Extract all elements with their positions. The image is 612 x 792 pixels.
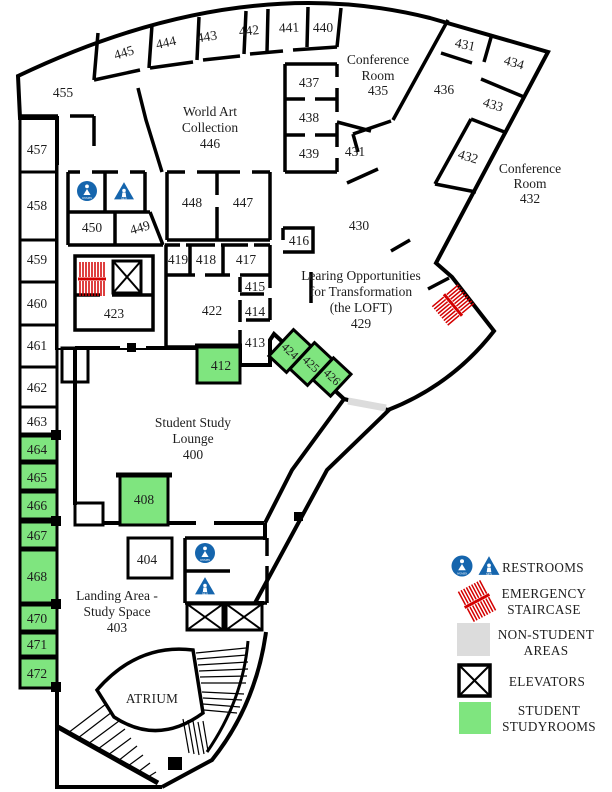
area-label-loft-1: Learing Opportunities: [301, 268, 421, 283]
room-label-471: 471: [27, 637, 47, 652]
legend-label-emergency-1: EMERGENCY: [502, 586, 587, 601]
room-label-419: 419: [168, 252, 189, 267]
legend-label-emergency-2: STAIRCASE: [507, 602, 580, 617]
room-label-467: 467: [27, 528, 48, 543]
room-label-470: 470: [27, 611, 48, 626]
room-label-441: 441: [278, 19, 299, 35]
room-label-461: 461: [27, 338, 47, 353]
room-label-436: 436: [434, 82, 455, 97]
area-label-landing-3: 403: [107, 620, 128, 635]
area-label-446-3: 446: [200, 136, 221, 151]
legend-emergency-staircase-icon: [457, 579, 498, 622]
area-label-conf435-3: 435: [368, 83, 389, 98]
legend-label-non-student-1: NON-STUDENT: [498, 627, 594, 642]
room-label-464: 464: [27, 442, 48, 457]
room-label-440: 440: [313, 20, 334, 35]
room-label-450: 450: [82, 220, 103, 235]
floor-plan-map: WOMEN MEN WOMEN MEN 455 445 444 443 442 …: [0, 0, 612, 792]
room-label-448: 448: [182, 195, 203, 210]
emergency-staircase-icon: [431, 283, 475, 326]
room-label-422: 422: [202, 303, 222, 318]
room-label-418: 418: [196, 252, 217, 267]
area-label-conf435-2: Room: [361, 68, 395, 83]
area-label-conf432-1: Conference: [499, 161, 561, 176]
area-label-conf432-2: Room: [513, 176, 547, 191]
legend-womens-restroom-icon: WOMEN: [452, 556, 473, 577]
atrium-stairs: [68, 648, 248, 777]
legend-label-student-2: STUDYROOMS: [502, 719, 596, 734]
room-label-442: 442: [238, 22, 260, 39]
room-label-460: 460: [27, 296, 48, 311]
room-label-439: 439: [299, 146, 320, 161]
legend: WOMEN MEN RESTROOMS EMERGENCY STAIRCASE …: [452, 555, 596, 734]
room-label-415: 415: [245, 279, 266, 294]
legend-mens-restroom-icon: MEN: [478, 555, 501, 576]
room-label-466: 466: [27, 498, 48, 513]
room-label-457: 457: [27, 142, 48, 157]
womens-label: WOMEN: [82, 197, 92, 200]
room-label-468: 468: [27, 569, 48, 584]
legend-label-restrooms: RESTROOMS: [502, 560, 584, 575]
room-label-408: 408: [134, 492, 155, 507]
room-label-412: 412: [211, 358, 231, 373]
legend-label-student-1: STUDENT: [518, 703, 580, 718]
legend-label-elevators: ELEVATORS: [509, 674, 585, 689]
womens-restroom-icon: WOMEN: [77, 181, 97, 201]
room-label-416: 416: [289, 233, 310, 248]
mens-restroom-icon: MEN: [194, 576, 216, 595]
room-label-438: 438: [299, 110, 320, 125]
area-label-atrium: ATRIUM: [126, 691, 178, 706]
room-label-431b: 431: [345, 144, 365, 159]
area-label-446-1: World Art: [183, 104, 237, 119]
area-label-446-2: Collection: [182, 120, 238, 135]
mens-label: MEN: [202, 592, 208, 595]
room-label-423: 423: [104, 306, 125, 321]
mens-label: MEN: [121, 197, 127, 200]
area-label-loft-4: 429: [351, 316, 372, 331]
room-label-463: 463: [27, 414, 48, 429]
area-label-lounge-3: 400: [183, 447, 204, 462]
area-label-loft-2: for Transformation: [310, 284, 413, 299]
room-label-417: 417: [236, 252, 257, 267]
legend-studyroom-swatch: [459, 702, 491, 734]
legend-non-student-swatch: [457, 623, 490, 656]
area-label-landing-2: Study Space: [83, 604, 150, 619]
room-label-431a: 431: [454, 35, 477, 54]
womens-restroom-icon: WOMEN: [195, 543, 215, 563]
area-label-lounge-1: Student Study: [155, 415, 231, 430]
floor-plan-page: WOMEN MEN WOMEN MEN 455 445 444 443 442 …: [0, 0, 612, 792]
mens-restroom-icon: MEN: [113, 181, 135, 200]
room-label-444: 444: [154, 33, 177, 52]
room-label-443: 443: [196, 27, 219, 45]
mens-label: MEN: [486, 573, 492, 576]
room-label-449: 449: [128, 217, 152, 237]
room-label-404: 404: [137, 552, 158, 567]
restroom-icons: WOMEN MEN WOMEN MEN: [77, 181, 216, 595]
womens-label: WOMEN: [200, 559, 210, 562]
room-label-437: 437: [299, 75, 320, 90]
area-label-lounge-2: Lounge: [172, 431, 213, 446]
room-label-465: 465: [27, 470, 48, 485]
room-label-414: 414: [245, 304, 266, 319]
emergency-staircase-icon: [78, 262, 106, 296]
room-label-462: 462: [27, 380, 47, 395]
room-label-433: 433: [481, 94, 505, 114]
room-label-430: 430: [349, 218, 370, 233]
area-label-loft-3: (the LOFT): [330, 300, 393, 315]
room-label-434: 434: [502, 53, 526, 73]
stair-hatching: [68, 648, 248, 777]
area-label-conf432-3: 432: [520, 191, 540, 206]
room-label-413: 413: [245, 335, 266, 350]
room-label-472: 472: [27, 666, 47, 681]
room-label-432: 432: [456, 146, 480, 166]
area-label-landing-1: Landing Area -: [76, 588, 158, 603]
area-label-conf435-1: Conference: [347, 52, 409, 67]
room-label-447: 447: [233, 195, 254, 210]
room-label-458: 458: [27, 198, 48, 213]
legend-label-non-student-2: AREAS: [524, 643, 569, 658]
room-label-445: 445: [112, 42, 136, 62]
womens-label: WOMEN: [457, 573, 467, 576]
room-label-459: 459: [27, 252, 48, 267]
room-label-455: 455: [53, 85, 74, 100]
